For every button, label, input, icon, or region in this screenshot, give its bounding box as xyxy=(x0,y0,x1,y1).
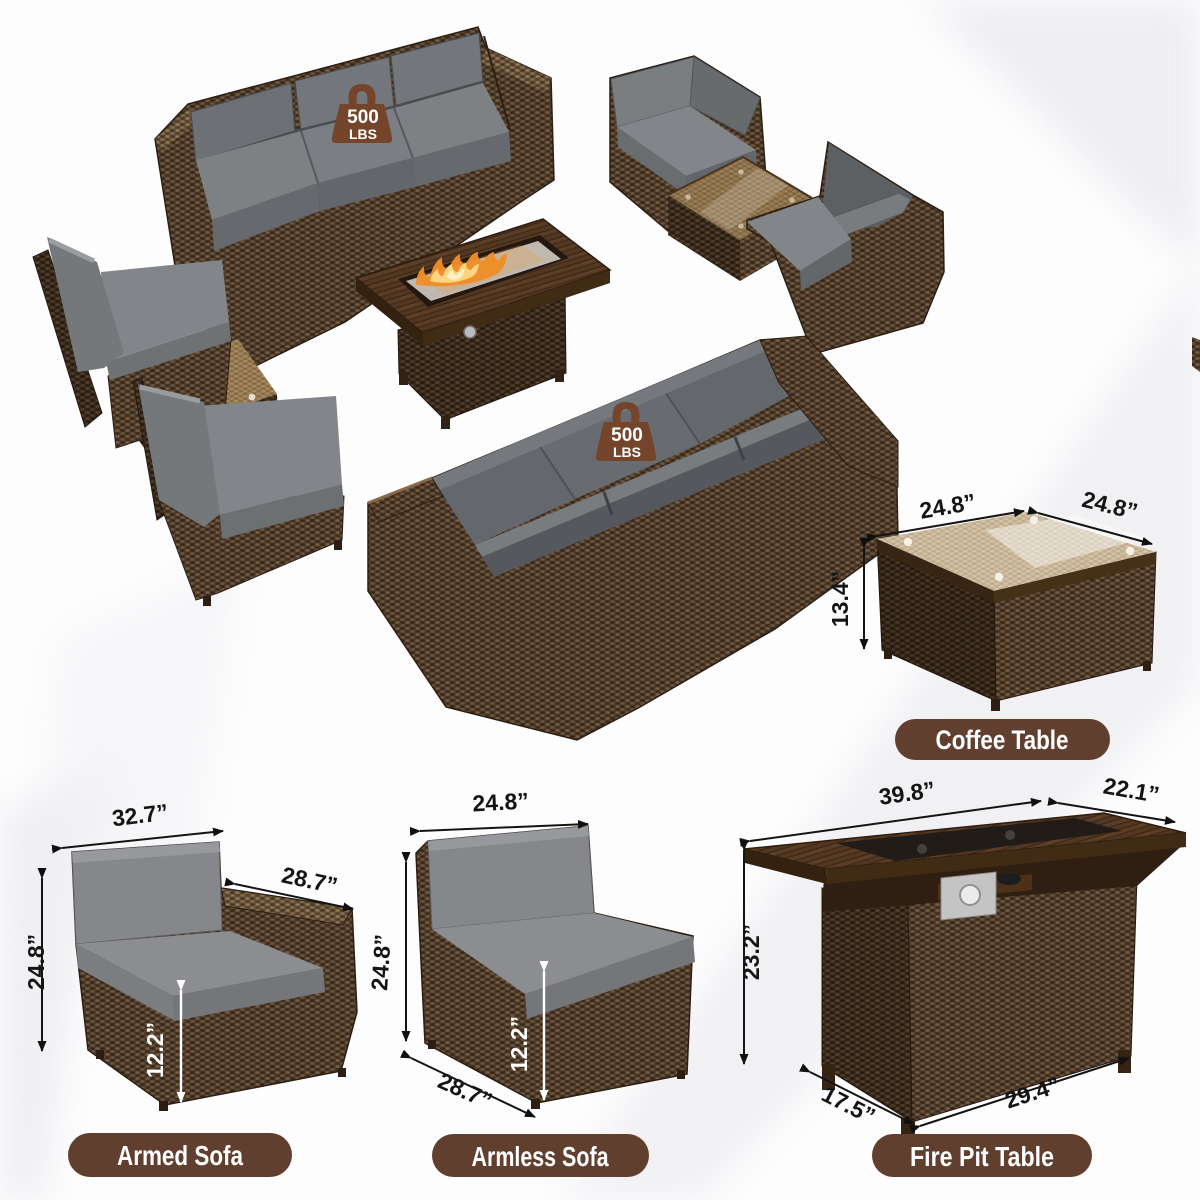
svg-text:Fire Pit Table: Fire Pit Table xyxy=(910,1141,1054,1172)
svg-text:Armless Sofa: Armless Sofa xyxy=(472,1141,609,1172)
svg-text:Armed Sofa: Armed Sofa xyxy=(117,1140,243,1171)
svg-text:12.2”: 12.2” xyxy=(142,1022,168,1078)
svg-text:24.8”: 24.8” xyxy=(472,788,530,817)
svg-text:12.2”: 12.2” xyxy=(506,1016,532,1072)
svg-text:500: 500 xyxy=(611,425,643,446)
svg-text:24.8”: 24.8” xyxy=(366,933,396,991)
svg-text:LBS: LBS xyxy=(349,126,377,142)
svg-text:13.4”: 13.4” xyxy=(827,571,853,627)
svg-text:LBS: LBS xyxy=(613,444,641,460)
svg-text:24.8”: 24.8” xyxy=(23,934,49,990)
svg-text:500: 500 xyxy=(347,107,379,128)
svg-text:Coffee Table: Coffee Table xyxy=(936,725,1069,755)
svg-text:23.2”: 23.2” xyxy=(738,924,764,980)
